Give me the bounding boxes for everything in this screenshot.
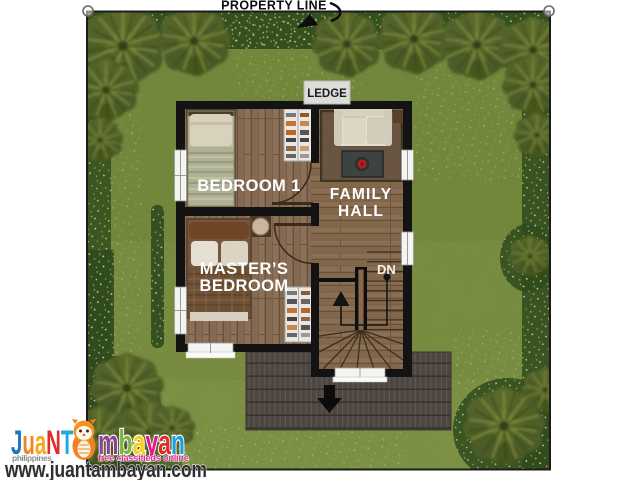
svg-text:HALL: HALL bbox=[338, 203, 384, 220]
svg-text:FAMILY: FAMILY bbox=[330, 186, 393, 203]
svg-text:BEDROOM: BEDROOM bbox=[200, 277, 289, 295]
svg-text:PROPERTY LINE: PROPERTY LINE bbox=[221, 0, 327, 13]
svg-text:BEDROOM 1: BEDROOM 1 bbox=[197, 177, 301, 195]
svg-text:LEDGE: LEDGE bbox=[307, 88, 347, 100]
svg-text:DN: DN bbox=[377, 262, 396, 277]
svg-text:T: T bbox=[61, 424, 73, 462]
svg-text:www.juantambayan.com: www.juantambayan.com bbox=[4, 457, 207, 480]
svg-text:MASTER’S: MASTER’S bbox=[200, 260, 288, 278]
